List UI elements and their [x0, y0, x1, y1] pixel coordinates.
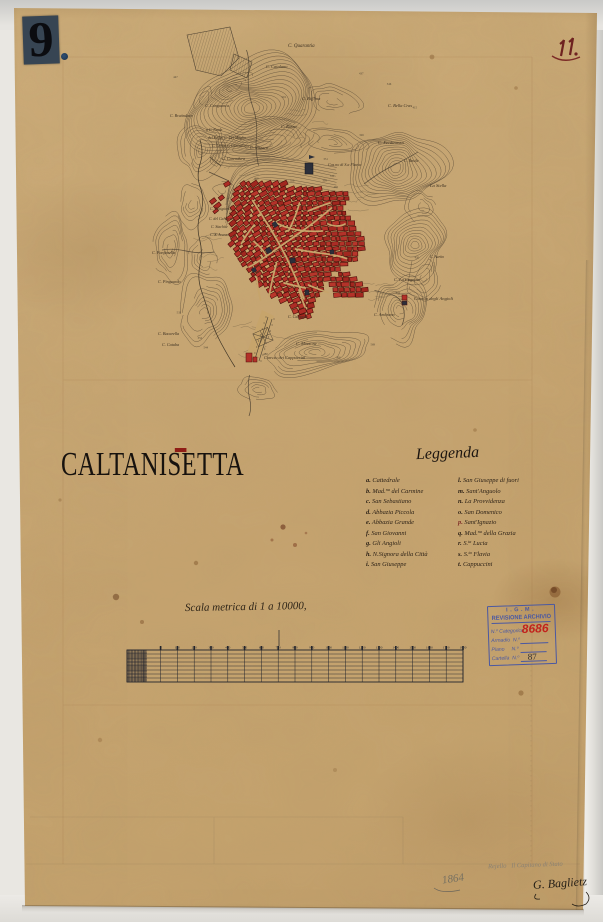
svg-text:C. Rotigiano: C. Rotigiano — [210, 206, 230, 211]
svg-text:C. Quarantia: C. Quarantia — [288, 44, 315, 49]
svg-text:332: 332 — [396, 291, 401, 295]
svg-text:511: 511 — [330, 174, 335, 178]
svg-text:Cas.no di S.a Flavia: Cas.no di S.a Flavia — [328, 162, 361, 167]
svg-text:Conv.to degli Angioli: Conv.to degli Angioli — [414, 296, 454, 301]
svg-text:C. Bella Cras: C. Bella Cras — [388, 103, 412, 108]
svg-text:C. del Calvario: C. del Calvario — [209, 217, 233, 221]
svg-text:523: 523 — [213, 233, 218, 237]
svg-text:426: 426 — [415, 256, 420, 260]
svg-text:546: 546 — [387, 82, 392, 86]
svg-text:351: 351 — [323, 157, 328, 161]
svg-text:C. Mozzone: C. Mozzone — [296, 341, 317, 346]
svg-text:C. Levita C. Giornaliera: C. Levita C. Giornaliera — [212, 144, 250, 148]
svg-text:C. Pinguardo: C. Pinguardo — [158, 279, 181, 284]
svg-text:C. Bifflina: C. Bifflina — [302, 96, 321, 101]
svg-text:501: 501 — [282, 95, 287, 99]
svg-text:C. Ferdinasso: C. Ferdinasso — [378, 140, 405, 145]
svg-text:320: 320 — [290, 179, 295, 183]
svg-text:480: 480 — [263, 352, 268, 356]
svg-text:C. Nizzara: C. Nizzara — [250, 145, 268, 150]
svg-text:Conv.to dei Cappuccini: Conv.to dei Cappuccini — [264, 355, 306, 360]
svg-text:C. Calpagio: C. Calpagio — [288, 314, 308, 319]
svg-text:415: 415 — [413, 106, 418, 110]
svg-text:C. La Cugnina: C. La Cugnina — [394, 277, 421, 282]
svg-text:C. Basile: C. Basile — [404, 158, 419, 163]
svg-text:C. Catalano: C. Catalano — [266, 64, 288, 69]
svg-text:C. Aurito: C. Aurito — [430, 255, 444, 259]
svg-text:399: 399 — [322, 178, 327, 182]
svg-text:C. Rosso: C. Rosso — [281, 124, 297, 129]
svg-text:447: 447 — [173, 75, 178, 79]
svg-text:C. Amitrano: C. Amitrano — [374, 312, 395, 317]
svg-text:326: 326 — [359, 133, 364, 137]
svg-text:C. Catuba: C. Catuba — [162, 342, 179, 347]
svg-text:C. Panfanella: C. Panfanella — [152, 250, 175, 255]
svg-text:492: 492 — [334, 185, 339, 189]
svg-text:La Stella: La Stella — [429, 183, 447, 188]
svg-text:a C. Nuale: a C. Nuale — [206, 128, 223, 132]
svg-text:C. Carendura: C. Carendura — [222, 156, 245, 161]
svg-text:460: 460 — [254, 177, 259, 181]
svg-text:569: 569 — [371, 343, 376, 347]
svg-text:C. Stachite: C. Stachite — [211, 225, 228, 229]
svg-text:306: 306 — [336, 355, 341, 359]
svg-text:352: 352 — [198, 336, 203, 340]
svg-text:437: 437 — [359, 72, 364, 76]
svg-text:403: 403 — [339, 292, 344, 296]
svg-text:544: 544 — [204, 345, 209, 349]
svg-text:del Pelliz. C. Del Maglio: del Pelliz. C. Del Maglio — [208, 136, 246, 140]
svg-text:C. Brutindura: C. Brutindura — [170, 113, 192, 118]
svg-text:C. Canguanca: C. Canguanca — [205, 103, 229, 108]
svg-text:535: 535 — [177, 311, 182, 315]
svg-text:C. Bacarella: C. Bacarella — [158, 331, 179, 336]
